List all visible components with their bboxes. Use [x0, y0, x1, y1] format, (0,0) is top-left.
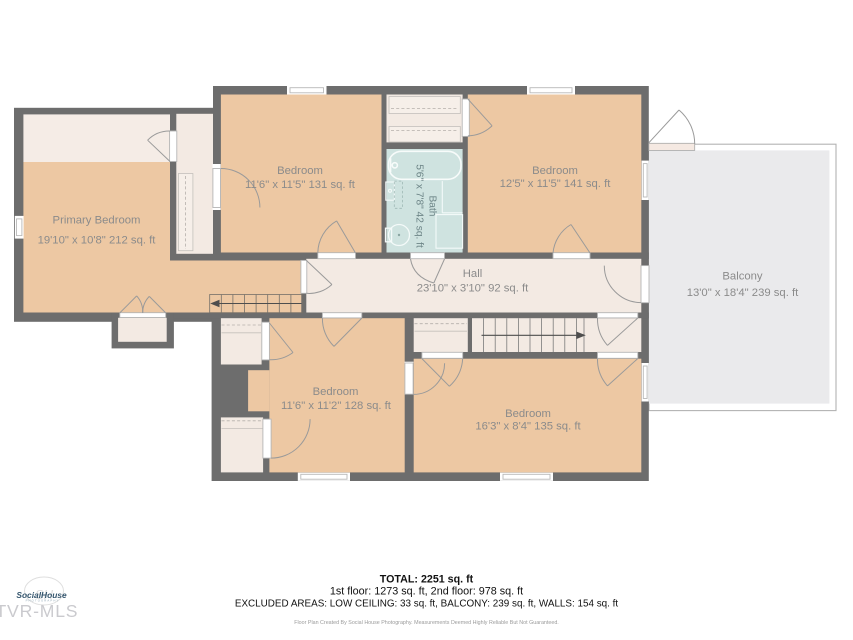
svg-text:Bedroom: Bedroom: [277, 165, 323, 177]
svg-text:Bedroom: Bedroom: [313, 386, 359, 398]
svg-text:Primary Bedroom: Primary Bedroom: [53, 215, 141, 227]
svg-text:11'6" x 11'5" 131 sq. ft: 11'6" x 11'5" 131 sq. ft: [245, 179, 356, 191]
svg-text:EXCLUDED AREAS: LOW CEILING: 3: EXCLUDED AREAS: LOW CEILING: 33 sq. ft, …: [235, 599, 619, 610]
svg-text:Floor Plan Created By Social H: Floor Plan Created By Social House Photo…: [294, 620, 559, 626]
svg-text:Hall: Hall: [463, 268, 482, 280]
svg-text:Bedroom: Bedroom: [505, 408, 551, 420]
svg-text:19'10" x 10'8" 212 sq. ft: 19'10" x 10'8" 212 sq. ft: [38, 235, 157, 247]
svg-text:1st floor: 1273 sq. ft, 2nd fl: 1st floor: 1273 sq. ft, 2nd floor: 978 s…: [330, 586, 523, 598]
svg-text:23'10" x 3'10" 92 sq. ft: 23'10" x 3'10" 92 sq. ft: [417, 283, 529, 295]
svg-text:TOTAL: 2251 sq. ft: TOTAL: 2251 sq. ft: [380, 574, 474, 586]
svg-text:13'0" x 18'4" 239 sq. ft: 13'0" x 18'4" 239 sq. ft: [687, 287, 799, 299]
svg-text:12'5" x 11'5" 141 sq. ft: 12'5" x 11'5" 141 sq. ft: [500, 178, 612, 190]
svg-text:Balcony: Balcony: [722, 271, 763, 283]
svg-text:5'6" x 7'8" 42 sq. ft: 5'6" x 7'8" 42 sq. ft: [414, 164, 425, 248]
svg-text:11'6" x 11'2" 128 sq. ft: 11'6" x 11'2" 128 sq. ft: [281, 400, 392, 412]
svg-text:Bath: Bath: [427, 196, 438, 217]
svg-text:TVR-MLS: TVR-MLS: [0, 601, 78, 621]
svg-text:Bedroom: Bedroom: [532, 165, 578, 177]
svg-text:16'3" x 8'4" 135 sq. ft: 16'3" x 8'4" 135 sq. ft: [475, 421, 581, 433]
